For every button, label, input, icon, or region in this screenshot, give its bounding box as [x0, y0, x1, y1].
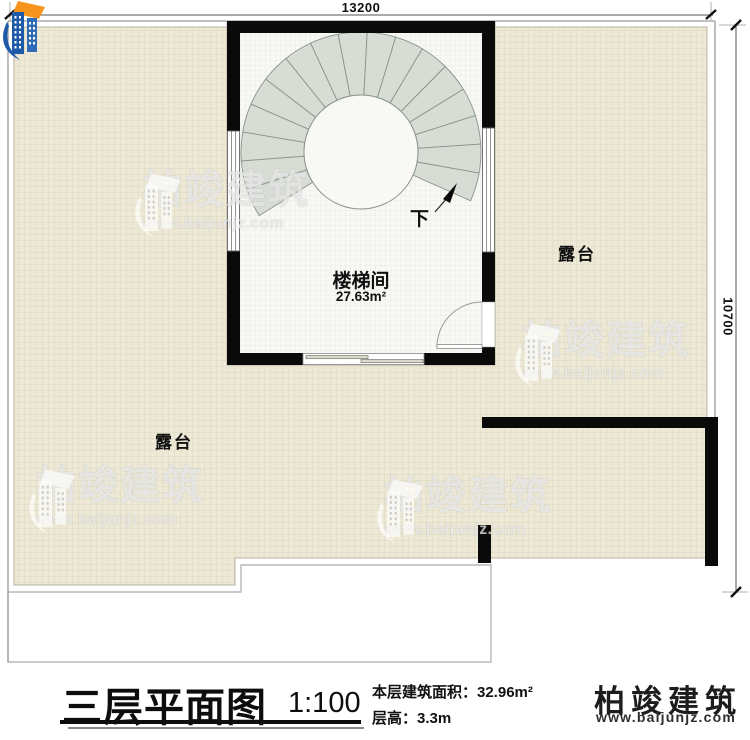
- terrace-right-label: 露台: [558, 240, 596, 265]
- stair-room-area: 27.63m²: [301, 289, 421, 304]
- window-right: [483, 128, 495, 252]
- floor-height-text: 层高：3.3m: [372, 707, 451, 728]
- floor-area-text: 本层建筑面积：32.96m²: [372, 681, 533, 702]
- dimension-right-value: 10700: [721, 287, 736, 347]
- stair-direction-label: 下: [410, 204, 429, 231]
- plan-scale: 1:100: [288, 687, 361, 720]
- title-underline-thin: [68, 727, 364, 729]
- plan-drawing: [0, 0, 750, 740]
- sliding-door-bottom: [303, 354, 424, 365]
- floor-plan-page: 13200 10700 楼梯间 27.63m² 露台 露台 下 柏竣建筑 www…: [0, 0, 750, 740]
- window-left: [228, 131, 240, 251]
- plan-title: 三层平面图: [62, 675, 267, 733]
- title-underline-thick: [60, 720, 361, 724]
- stair-well-opening: [304, 95, 418, 209]
- company-logo-icon: [0, 0, 48, 62]
- terrace-left-label: 露台: [155, 428, 193, 453]
- dimension-top-value: 13200: [325, 0, 397, 15]
- company-url: www.baijunjz.com: [596, 709, 736, 725]
